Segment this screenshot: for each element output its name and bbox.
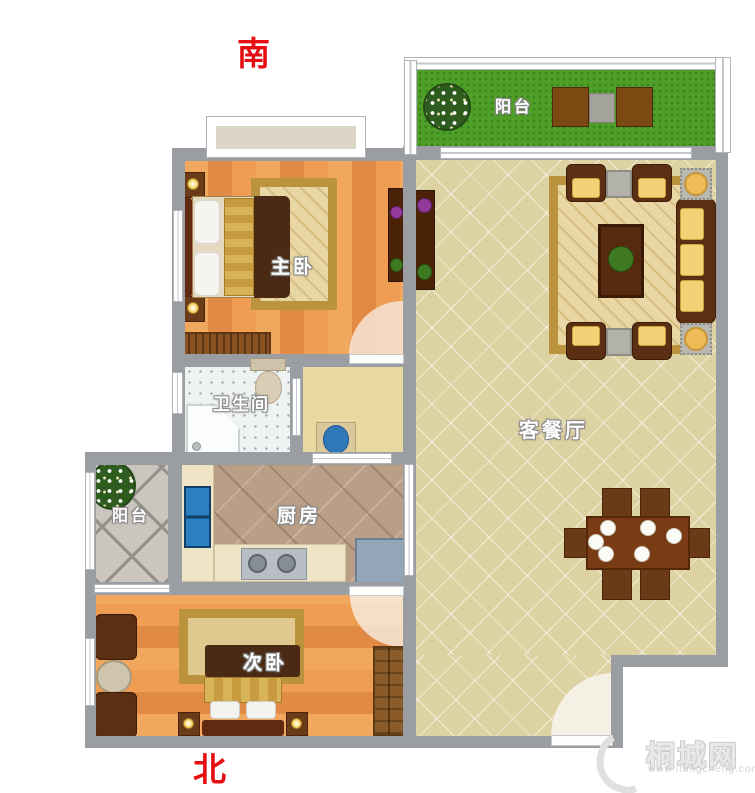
- balcony-chair-left: [552, 87, 589, 127]
- master-bed-pillow-2: [194, 252, 220, 296]
- balcony-table: [589, 93, 615, 123]
- balcony-left-label: 阳台: [112, 502, 150, 526]
- second-bedroom-label: 次卧: [243, 648, 287, 675]
- corner-table-top: [684, 172, 708, 196]
- master-lamp-top: [187, 178, 199, 190]
- compass-south-label: 南: [237, 27, 270, 75]
- floor-plan: 南 北: [0, 0, 755, 793]
- watermark-site-url: www.itongcheng.com: [648, 764, 755, 775]
- second-armchair-bottom: [95, 692, 137, 738]
- coffee-table-plant: [608, 246, 634, 272]
- bathroom-pocket-door: [292, 378, 301, 436]
- side-table-top: [606, 170, 632, 198]
- bay-window-pane: [214, 124, 358, 151]
- second-bed-pillow-1: [210, 701, 240, 719]
- stove-burner-right: [277, 554, 296, 573]
- stove-burner-left: [248, 554, 267, 573]
- master-dresser-flower: [390, 206, 403, 219]
- tv-stand-flower: [417, 198, 432, 213]
- wall-balcony-kitchen: [168, 452, 182, 595]
- second-bed-headboard: [202, 720, 284, 736]
- master-bed-blanket: [254, 196, 290, 298]
- balcony-top-frame-left: [404, 60, 417, 155]
- dining-chair-bottom-1: [602, 568, 632, 600]
- wall-right-outer: [716, 146, 728, 667]
- wall-center-vertical: [403, 148, 416, 748]
- second-bedroom-left-window: [85, 638, 95, 706]
- balcony-top-frame-top: [404, 57, 730, 70]
- balcony-top-frame-right: [715, 57, 731, 153]
- master-bedroom-label: 主卧: [271, 252, 315, 279]
- master-bed-gold-sheet: [224, 198, 254, 296]
- second-bed-gold-sheet: [204, 677, 282, 703]
- balcony-left-window: [85, 472, 95, 570]
- shower-head: [192, 442, 201, 451]
- armchair-bottom-right-cushion: [638, 326, 666, 346]
- balcony-top-label: 阳台: [495, 93, 533, 117]
- armchair-top-left-cushion: [572, 178, 600, 198]
- refrigerator: [355, 538, 405, 584]
- sofa-cushion-2: [680, 244, 704, 276]
- side-table-bottom: [606, 328, 632, 356]
- dining-chair-right: [688, 528, 710, 558]
- second-bedroom-door-leaf: [349, 586, 404, 596]
- master-door-leaf: [349, 354, 404, 364]
- kitchen-label: 厨房: [277, 501, 321, 528]
- dining-plate-2: [640, 520, 656, 536]
- second-lamp-right: [291, 718, 302, 729]
- armchair-top-right-cushion: [638, 178, 666, 198]
- dining-chair-bottom-2: [640, 568, 670, 600]
- master-left-window: [173, 210, 183, 302]
- dining-plate-6: [634, 546, 650, 562]
- balcony-bedroom-window: [94, 584, 170, 593]
- second-bed-pillow-2: [246, 701, 276, 719]
- sofa-cushion-1: [680, 208, 704, 240]
- sofa-cushion-3: [680, 280, 704, 312]
- armchair-bottom-left-cushion: [572, 326, 600, 346]
- master-bed-pillow-1: [194, 200, 220, 244]
- dining-plate-1: [600, 520, 616, 536]
- wall-notch-horizontal: [611, 655, 728, 667]
- second-armchair-top: [95, 614, 137, 660]
- dining-plate-5: [598, 546, 614, 562]
- corner-table-bottom: [684, 327, 708, 351]
- wall-bottom-outer: [85, 736, 623, 748]
- master-lamp-bottom: [187, 302, 199, 314]
- living-dining-label: 客餐厅: [519, 414, 588, 443]
- balcony-chair-right: [616, 87, 653, 127]
- second-round-table: [96, 660, 132, 694]
- kitchen-sink: [184, 486, 211, 548]
- tv-stand-plant: [417, 264, 432, 280]
- second-lamp-left: [183, 718, 194, 729]
- compass-north-label: 北: [193, 743, 226, 791]
- washing-machine: [323, 425, 349, 453]
- bathroom-left-window: [172, 372, 183, 414]
- dining-plate-4: [666, 528, 682, 544]
- balcony-living-slider: [440, 147, 692, 159]
- master-dresser-plant: [390, 258, 403, 272]
- bathroom-label: 卫生间: [213, 390, 270, 415]
- toilet-tank: [250, 358, 286, 371]
- balcony-top-plant: [423, 83, 471, 131]
- kitchen-slider-door: [404, 464, 414, 576]
- wardrobe: [373, 646, 405, 736]
- hall-kitchen-opening: [312, 453, 392, 464]
